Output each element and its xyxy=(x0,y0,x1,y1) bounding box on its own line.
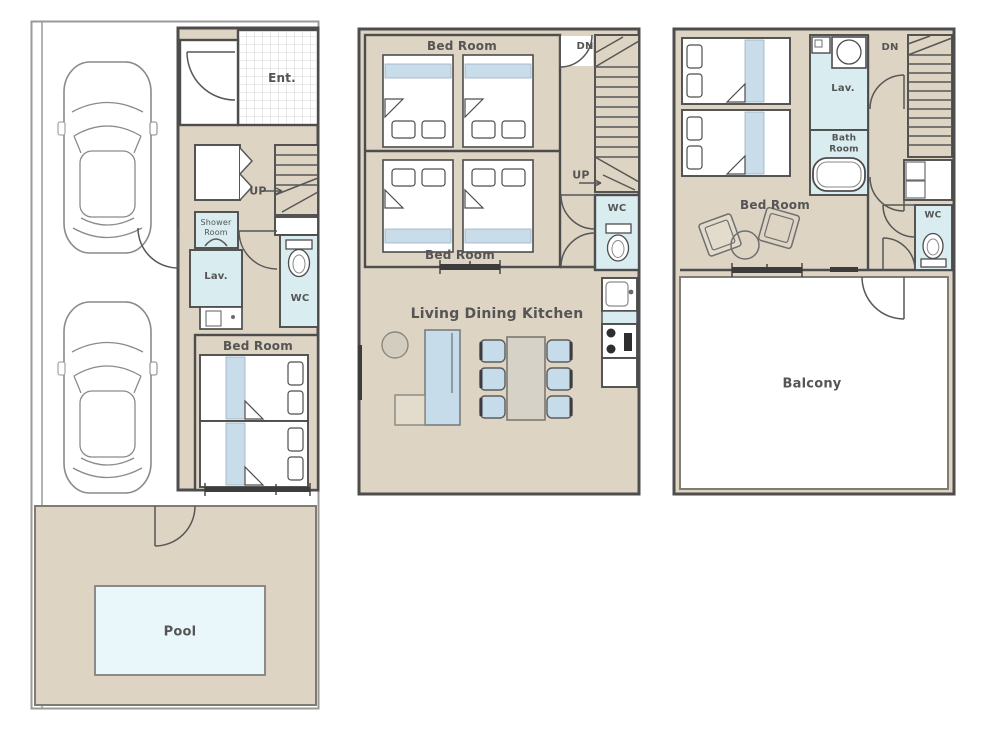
pool-label: Pool xyxy=(164,626,197,639)
up-label: UP xyxy=(572,170,589,181)
bedroom-1f xyxy=(195,335,318,496)
floor2-graphics xyxy=(357,27,641,496)
bedroom-top-label: Bed Room xyxy=(427,40,497,52)
bedroom-label: Bed Room xyxy=(223,340,293,352)
living-dining-kitchen-label: Living Dining Kitchen xyxy=(411,307,584,321)
wc-label: WC xyxy=(925,212,942,221)
bed-icon xyxy=(463,55,533,147)
storage-room xyxy=(180,40,238,125)
lavatory-label: Lav. xyxy=(204,272,227,282)
bed-icon xyxy=(463,160,533,252)
dining-table-icon xyxy=(480,337,572,420)
toilet-icon xyxy=(606,224,631,261)
bath-room-label-line2: Room xyxy=(829,146,858,155)
floor2-plan: Bed Room DN UP WC Bed Room Living Dining… xyxy=(357,27,641,496)
bed-icon xyxy=(682,110,790,176)
wc-label: WC xyxy=(608,204,627,214)
shelf xyxy=(275,217,318,235)
bath-room-label-line1: Bath xyxy=(832,135,856,144)
stairs-icon xyxy=(908,35,952,157)
dn-label: DN xyxy=(881,43,898,53)
floor1-plan: Ent. UP Shower Room Lav. WC Bed Room Poo… xyxy=(30,20,320,710)
wc-label: WC xyxy=(291,294,310,304)
bedroom-bottom-label: Bed Room xyxy=(425,249,495,261)
floor3-plan: DN Lav. Bath Room Bed Room WC Balcony xyxy=(672,27,956,496)
stove-icon xyxy=(602,324,637,358)
entrance-label: Ent. xyxy=(268,72,296,84)
balcony-label: Balcony xyxy=(783,378,842,391)
bed-icon xyxy=(383,160,453,252)
floor3-graphics xyxy=(672,27,956,496)
bed-icon xyxy=(383,55,453,147)
up-label: UP xyxy=(249,186,266,197)
lavatory-label: Lav. xyxy=(831,84,854,94)
bathtub-icon xyxy=(813,158,865,191)
window xyxy=(830,267,858,272)
chair-icon xyxy=(547,340,572,418)
floor-plan-page: Ent. UP Shower Room Lav. WC Bed Room Poo… xyxy=(0,0,1000,736)
shower-room-label-line2: Room xyxy=(204,229,228,237)
pool-terrace xyxy=(35,506,316,705)
bedroom-label: Bed Room xyxy=(740,199,810,211)
shower-room-label-line1: Shower xyxy=(201,219,232,227)
sliding-window xyxy=(205,487,310,492)
side-table-icon xyxy=(395,395,425,425)
sink-icon xyxy=(832,37,866,68)
closet xyxy=(904,160,952,200)
stool-icon xyxy=(382,332,408,358)
bed-icon xyxy=(682,38,790,104)
chair-icon xyxy=(480,340,505,418)
wc-room xyxy=(280,235,318,327)
floor1-graphics xyxy=(30,20,320,710)
kitchen-counter xyxy=(602,278,637,387)
dn-label: DN xyxy=(576,42,593,52)
toilet-icon xyxy=(286,240,312,277)
window xyxy=(358,345,362,400)
